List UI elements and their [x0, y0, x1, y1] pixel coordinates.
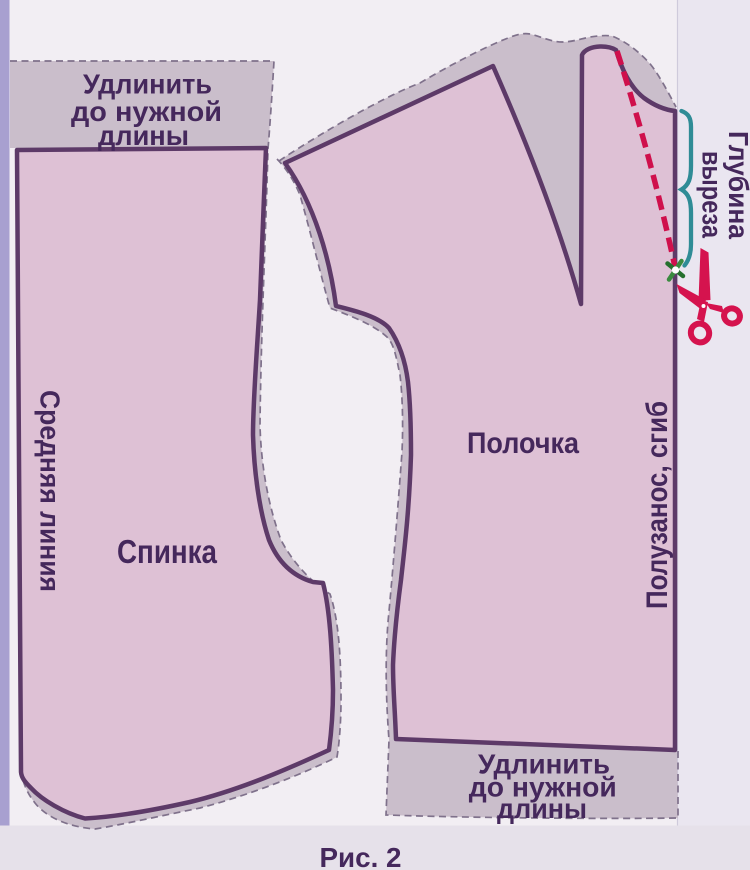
- svg-text:Спинка: Спинка: [117, 533, 218, 570]
- svg-text:длины: длины: [98, 120, 189, 151]
- svg-text:Полузанос, сгиб: Полузанос, сгиб: [641, 401, 674, 609]
- svg-text:Полочка: Полочка: [467, 427, 579, 460]
- svg-text:Рис. 2: Рис. 2: [320, 842, 402, 870]
- svg-text:длины: длины: [497, 793, 587, 824]
- svg-text:Средняя линия: Средняя линия: [35, 390, 66, 592]
- svg-text:Удлинить: Удлинить: [83, 69, 212, 100]
